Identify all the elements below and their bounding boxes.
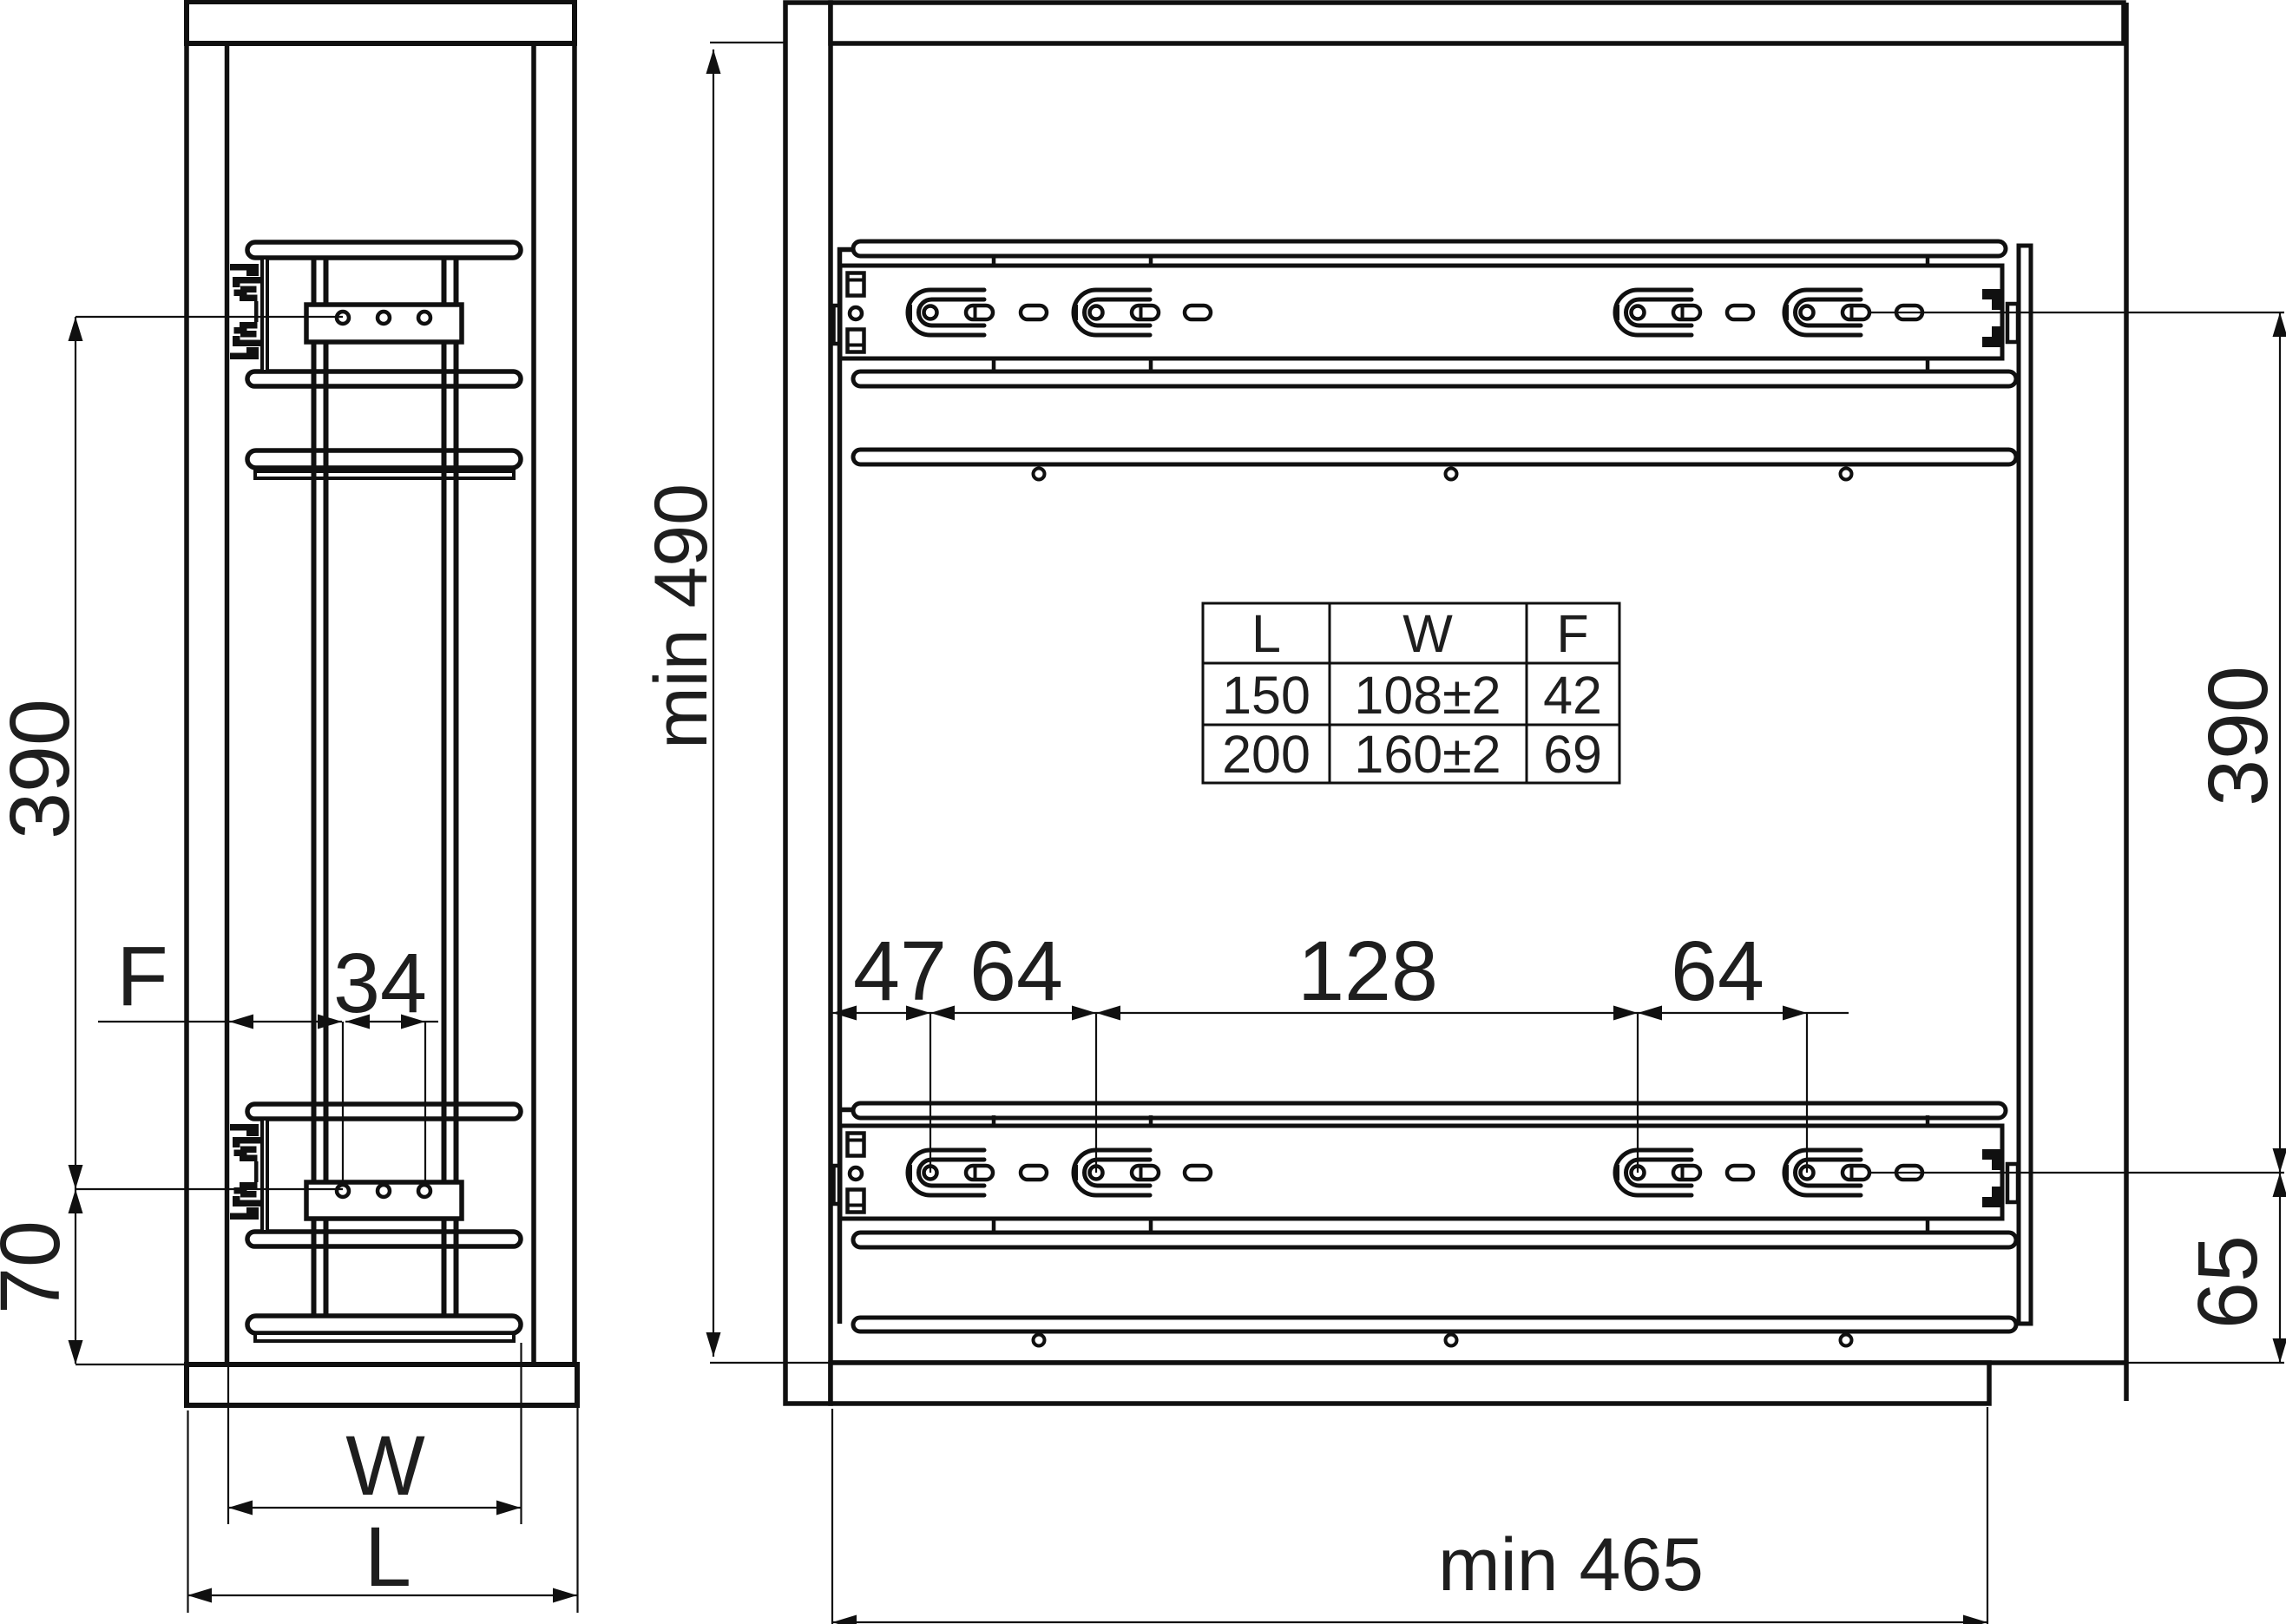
svg-text:42: 42 (1543, 666, 1602, 725)
svg-text:108±2: 108±2 (1354, 666, 1501, 725)
svg-text:F: F (116, 929, 168, 1023)
svg-text:128: 128 (1297, 924, 1438, 1018)
svg-text:47: 47 (853, 924, 947, 1018)
svg-text:W: W (1402, 604, 1453, 663)
svg-text:34: 34 (333, 936, 427, 1030)
svg-text:64: 64 (1671, 924, 1764, 1018)
svg-text:min 465: min 465 (1438, 1523, 1704, 1607)
svg-text:L: L (1251, 604, 1281, 663)
svg-text:64: 64 (969, 924, 1063, 1018)
svg-text:L: L (365, 1509, 411, 1604)
svg-text:70: 70 (0, 1220, 77, 1314)
svg-text:390: 390 (2191, 666, 2285, 806)
svg-text:65: 65 (2180, 1235, 2275, 1329)
svg-text:200: 200 (1222, 725, 1311, 784)
svg-text:W: W (345, 1418, 425, 1513)
svg-text:min 490: min 490 (640, 483, 723, 749)
svg-text:390: 390 (0, 699, 87, 839)
svg-text:160±2: 160±2 (1354, 725, 1501, 784)
svg-text:69: 69 (1543, 725, 1602, 784)
svg-text:F: F (1556, 604, 1588, 663)
svg-text:150: 150 (1222, 666, 1311, 725)
